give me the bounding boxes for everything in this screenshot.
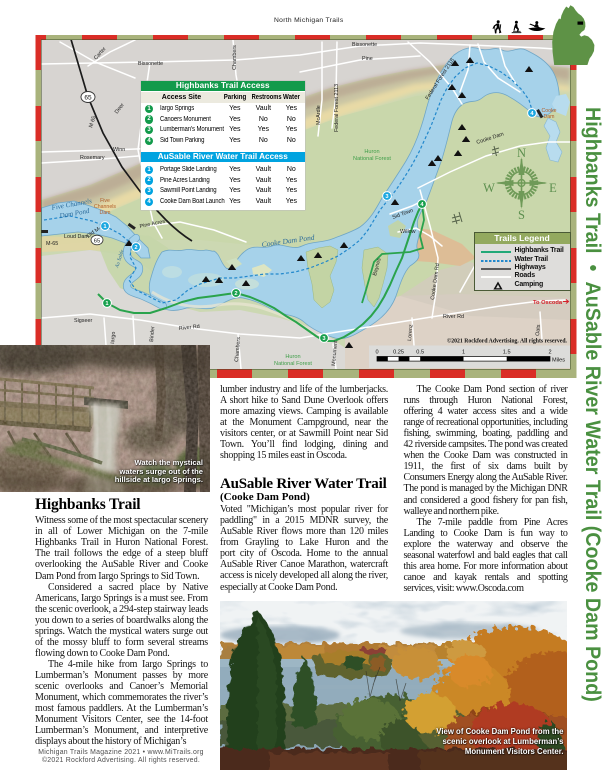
- svg-text:1: 1: [462, 350, 465, 356]
- svg-text:Chambers: Chambers: [232, 45, 238, 70]
- svg-text:S: S: [518, 208, 525, 222]
- svg-text:W: W: [483, 181, 495, 195]
- svg-text:65: 65: [94, 238, 100, 244]
- svg-text:Pine: Pine: [362, 56, 373, 62]
- svg-text:Winn: Winn: [113, 147, 125, 153]
- svg-text:Huron: Huron: [285, 354, 300, 360]
- svg-text:0.25: 0.25: [393, 350, 404, 356]
- svg-text:E: E: [549, 181, 557, 195]
- svg-text:2: 2: [548, 350, 551, 356]
- svg-text:Federal Forest 2113: Federal Forest 2113: [334, 84, 340, 132]
- svg-text:N: N: [517, 146, 526, 160]
- svg-text:1.5: 1.5: [503, 350, 511, 356]
- svg-text:Bissonette: Bissonette: [352, 42, 377, 48]
- svg-text:©2021 Rockford Advertising. Al: ©2021 Rockford Advertising. All rights r…: [447, 338, 567, 345]
- svg-text:Sigseer: Sigseer: [74, 318, 92, 324]
- svg-text:To Oscoda: To Oscoda: [533, 300, 563, 306]
- svg-text:Dam: Dam: [544, 114, 555, 120]
- svg-text:River Rd: River Rd: [443, 314, 464, 320]
- svg-text:Huron: Huron: [364, 149, 379, 155]
- svg-text:Miles: Miles: [552, 358, 565, 364]
- svg-text:2: 2: [234, 291, 237, 297]
- svg-text:65: 65: [84, 95, 92, 102]
- svg-text:Bissonette: Bissonette: [138, 61, 163, 67]
- svg-text:National Forest: National Forest: [274, 361, 312, 367]
- svg-text:Loud Dam: Loud Dam: [64, 234, 89, 240]
- svg-text:0: 0: [375, 350, 378, 356]
- svg-text:M-65: M-65: [46, 241, 58, 247]
- svg-text:0.5: 0.5: [416, 350, 424, 356]
- svg-text:Rosemary: Rosemary: [80, 155, 105, 161]
- svg-text:National Forest: National Forest: [353, 156, 391, 162]
- svg-text:Oats: Oats: [535, 324, 542, 336]
- svg-text:Iargo: Iargo: [110, 331, 117, 344]
- svg-text:Dam: Dam: [100, 210, 111, 216]
- svg-text:Willow: Willow: [400, 229, 416, 235]
- svg-text:McArdle: McArdle: [316, 105, 322, 125]
- svg-text:2: 2: [134, 245, 137, 251]
